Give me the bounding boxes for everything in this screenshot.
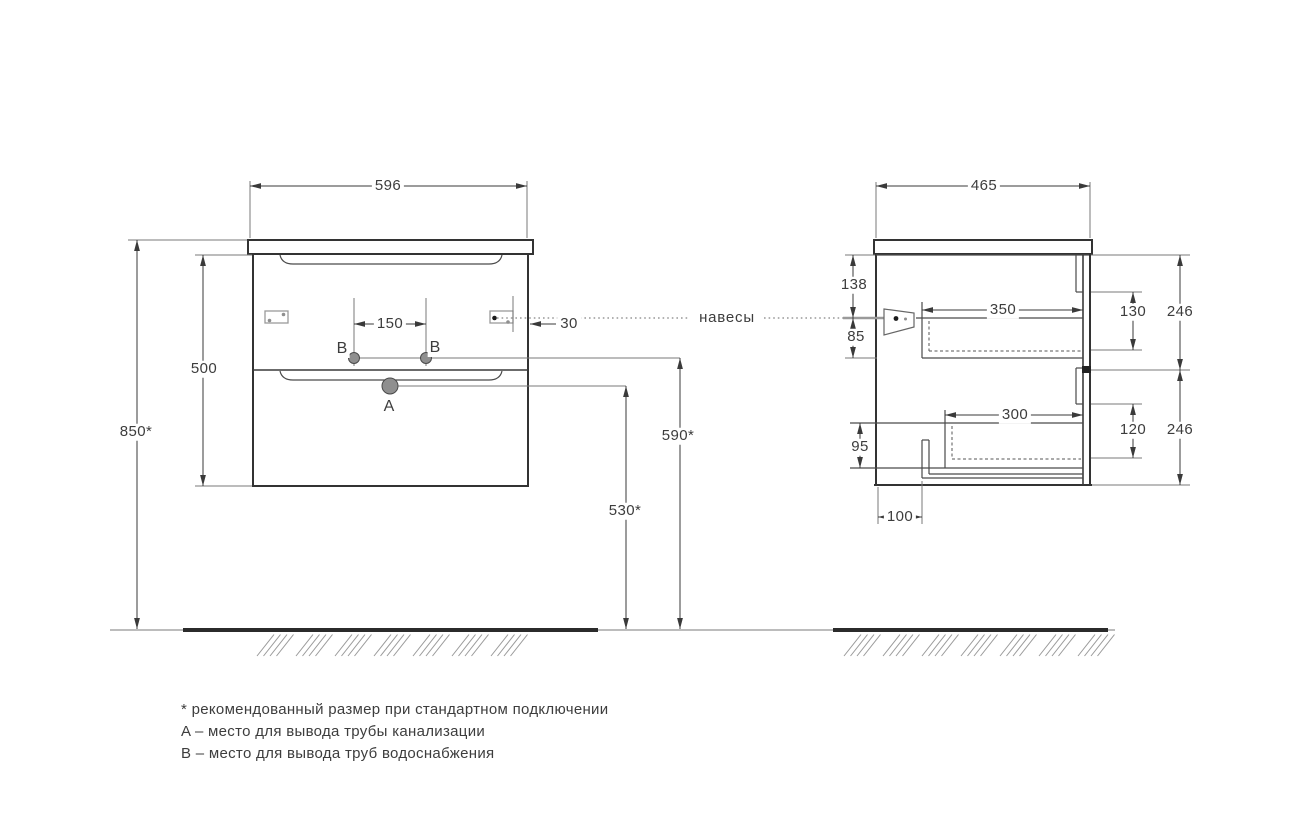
water-outlet-hole-left xyxy=(349,353,360,364)
dim-hanger-drop: 85 xyxy=(844,329,868,346)
dim-mounting-height: 850* xyxy=(117,424,155,441)
dim-hanger-top-offset: 138 xyxy=(838,277,870,294)
marker-b-left: B xyxy=(335,340,350,358)
dim-hanger-side-offset: 30 xyxy=(557,316,581,333)
dim-top-drawer-inner-height: 130 xyxy=(1117,304,1149,321)
dim-water-outlet-height: 590* xyxy=(659,428,697,445)
marker-b-right: B xyxy=(428,339,443,357)
dim-side-depth: 465 xyxy=(968,178,1000,195)
dim-drain-outlet-height: 530* xyxy=(606,503,644,520)
dim-top-front-height: 246 xyxy=(1164,304,1196,321)
legend-note-b: B – место для вывода труб водоснабжения xyxy=(181,745,494,762)
dim-bottom-clearance: 95 xyxy=(848,439,872,456)
drawer-front-gap xyxy=(1082,366,1091,373)
hangers-callout: навесы xyxy=(696,310,758,327)
dim-water-outlets-spacing: 150 xyxy=(374,316,406,333)
dim-front-width: 596 xyxy=(372,178,404,195)
dim-top-drawer-inner-depth: 350 xyxy=(987,302,1019,319)
installation-diagram: 596 500 850* 150 30 530* 590* B B A 465 … xyxy=(0,0,1300,836)
floor-hatching-left xyxy=(257,635,528,657)
legend-note-asterisk: * рекомендованный размер при стандартном… xyxy=(181,701,608,718)
dim-carcass-height: 500 xyxy=(188,361,220,378)
hanger-bracket-section xyxy=(884,309,914,335)
drain-outlet-hole xyxy=(382,378,398,394)
dim-pipe-cutout-offset: 100 xyxy=(884,509,916,526)
legend-note-a: A – место для вывода трубы канализации xyxy=(181,723,485,740)
side-view-cabinet xyxy=(843,240,1092,485)
side-view-dimensions xyxy=(845,182,1190,524)
front-view-dimensions xyxy=(128,181,843,629)
dim-bottom-front-height: 246 xyxy=(1164,422,1196,439)
floor-line xyxy=(110,630,1115,656)
front-view-cabinet xyxy=(248,240,680,486)
dim-bottom-drawer-inner-height: 120 xyxy=(1117,422,1149,439)
marker-a: A xyxy=(382,398,397,416)
floor-hatching-right xyxy=(844,635,1115,657)
dim-bottom-drawer-inner-depth: 300 xyxy=(999,407,1031,424)
